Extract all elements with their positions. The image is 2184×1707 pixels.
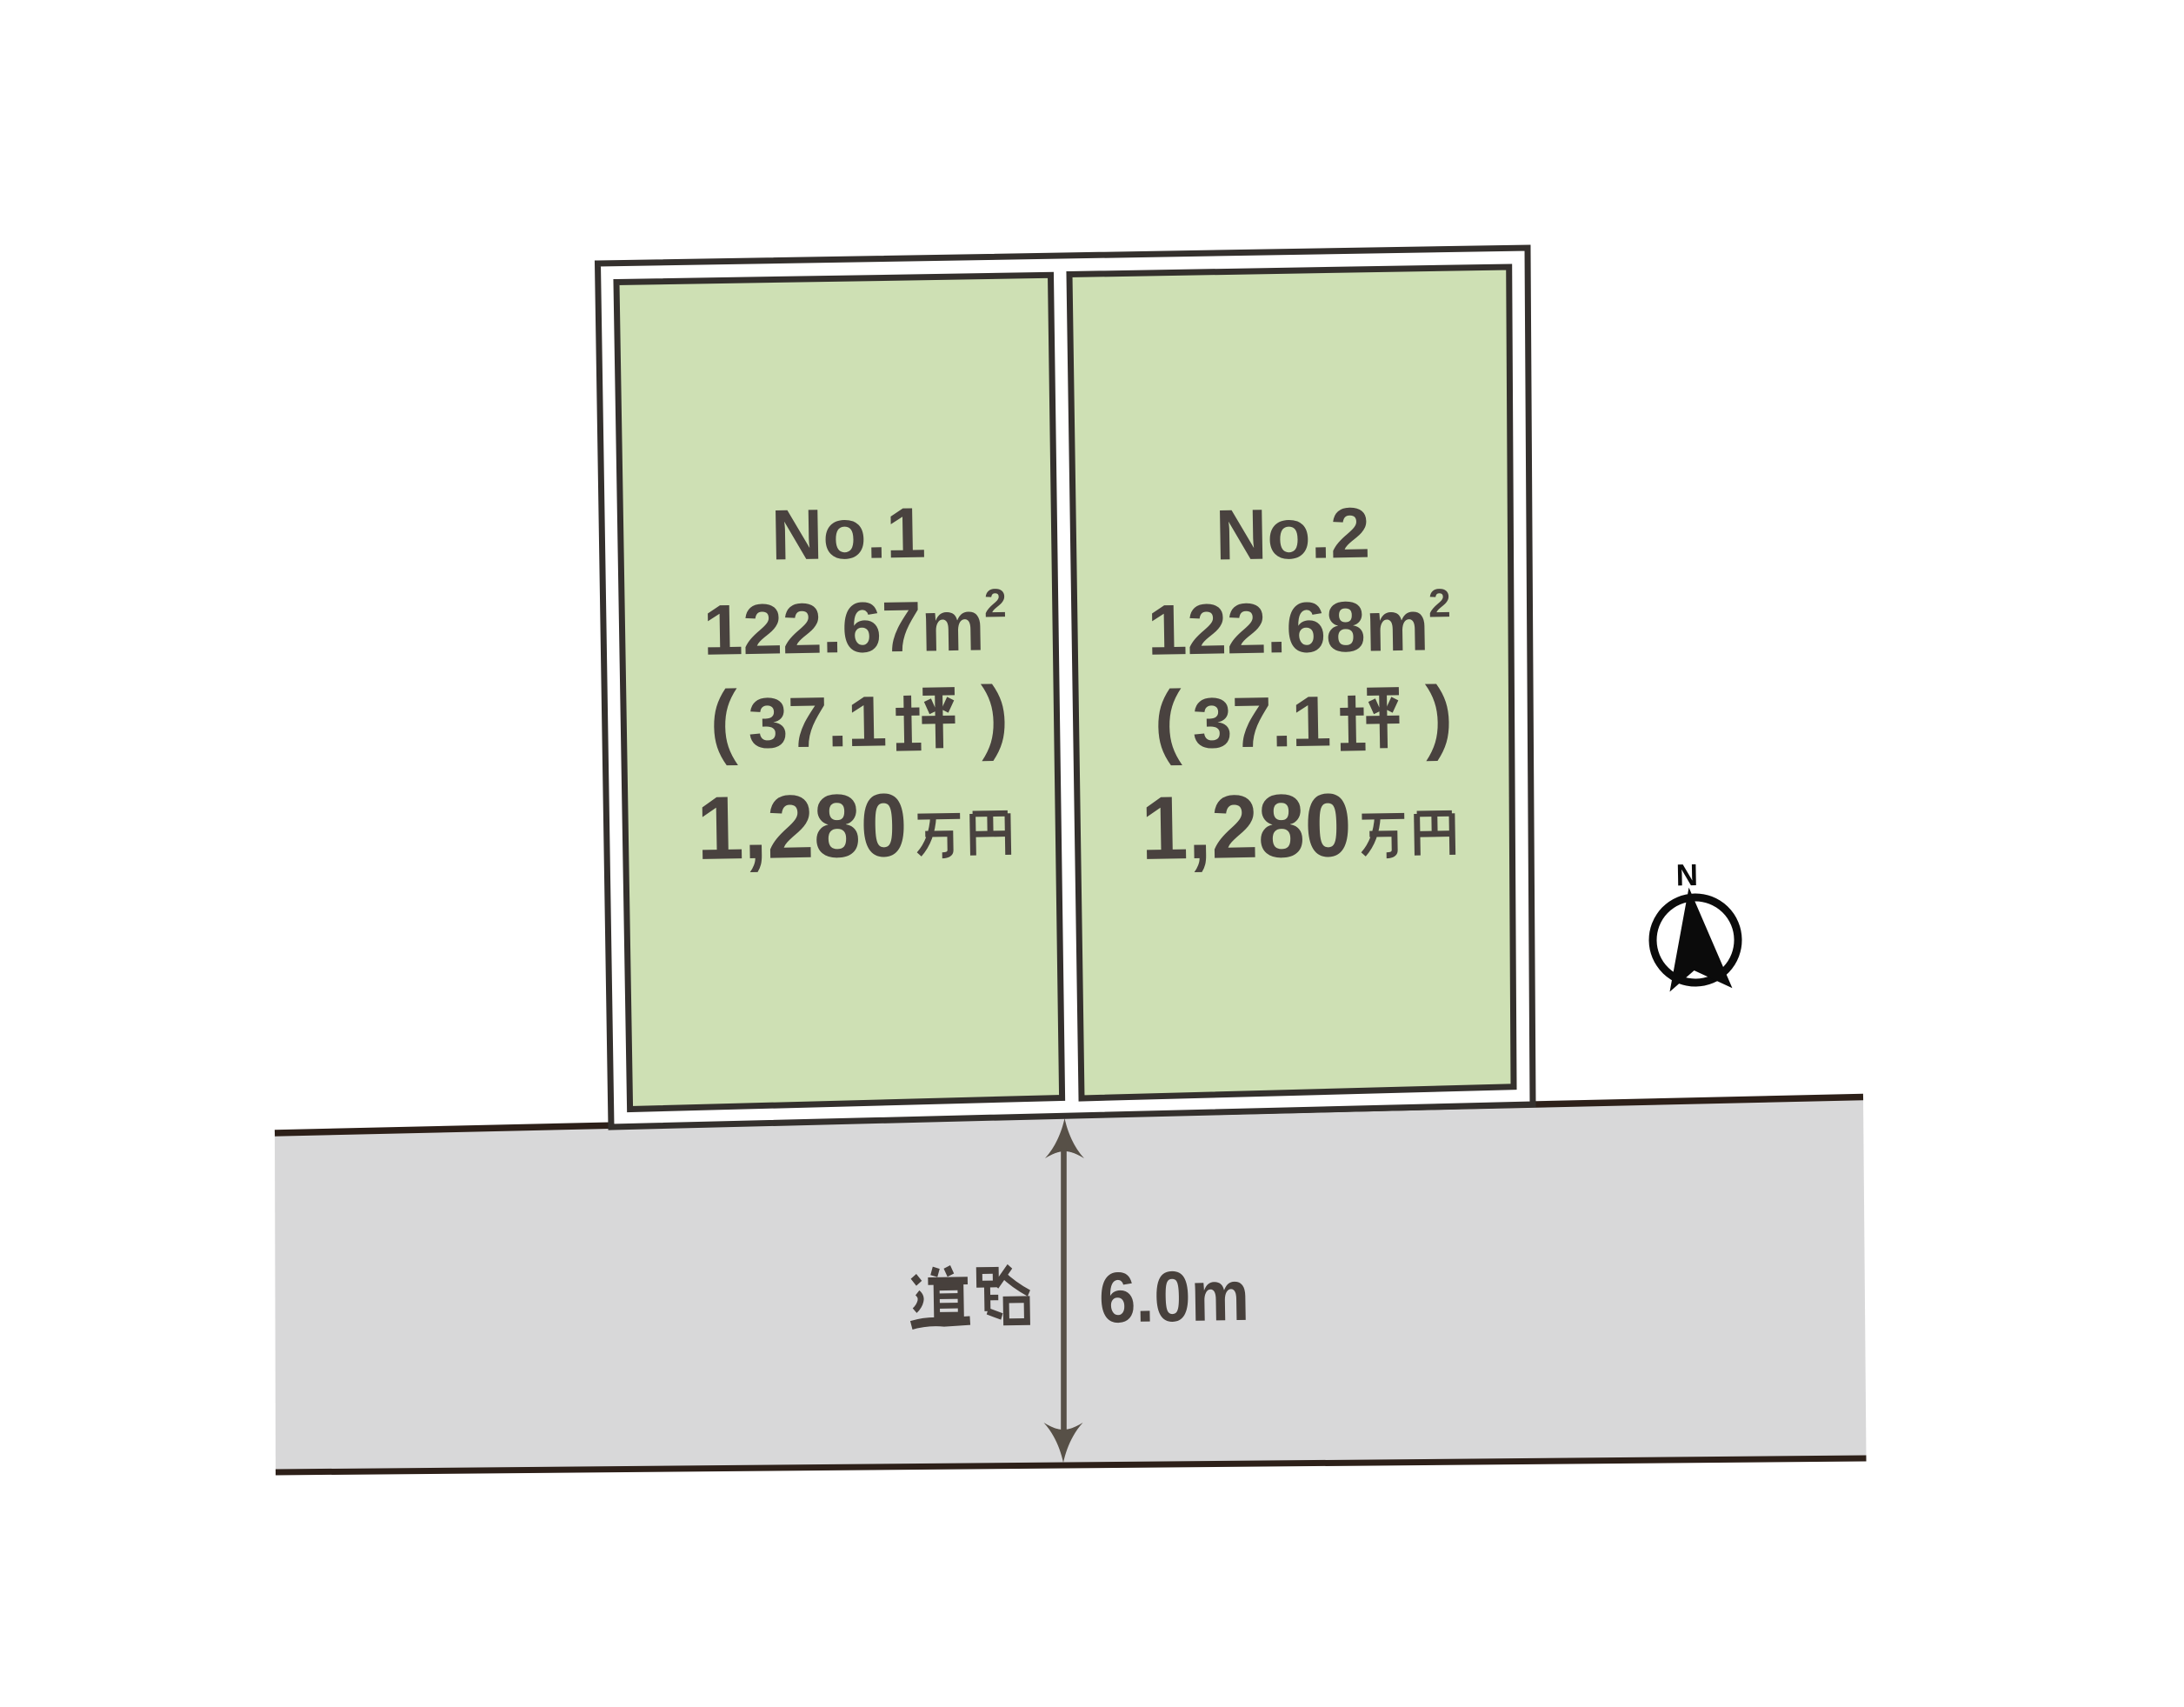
svg-text:): )	[1425, 670, 1454, 763]
svg-text:): )	[981, 670, 1009, 763]
svg-text:1,280: 1,280	[1141, 775, 1353, 878]
svg-text:37.1: 37.1	[748, 682, 888, 763]
svg-text:1,280: 1,280	[696, 775, 909, 878]
svg-text:(: (	[709, 674, 739, 767]
svg-text:122.68m2: 122.68m2	[1147, 580, 1452, 670]
svg-text:37.1: 37.1	[1192, 682, 1332, 763]
svg-text:122.67m2: 122.67m2	[702, 580, 1008, 670]
svg-text:(: (	[1154, 674, 1183, 767]
svg-text:No.1: No.1	[770, 494, 926, 576]
svg-text:N: N	[1675, 858, 1698, 892]
svg-text:No.2: No.2	[1215, 494, 1370, 576]
svg-text:6.0m: 6.0m	[1098, 1257, 1249, 1338]
